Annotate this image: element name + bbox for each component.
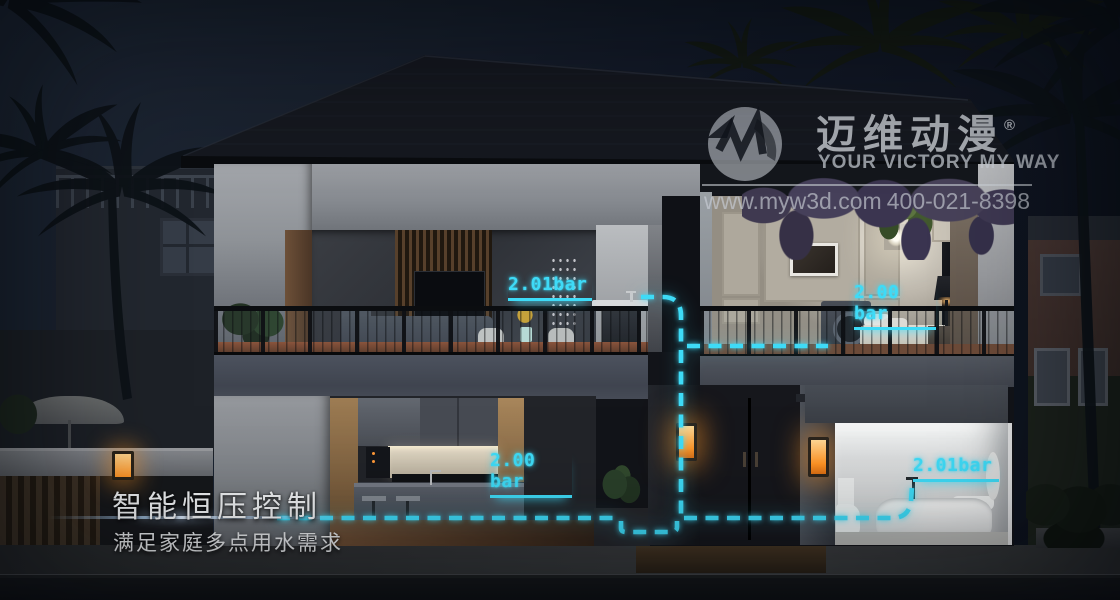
pipe-main-right <box>684 487 912 518</box>
pressure-label-kitchen: 2.00 bar <box>490 450 572 498</box>
pressure-label-basin: 2.01bar <box>508 274 592 301</box>
scene: 2.01bar 2.00 bar 2.00 bar 2.01bar 迈维动漫® … <box>0 0 1120 600</box>
mw-logo-icon <box>704 103 786 185</box>
logo-company-name-text: 迈维动漫 <box>816 113 1004 157</box>
phone-number: 400-021-8398 <box>887 188 1030 215</box>
website-url: www.myw3d.com <box>704 188 882 215</box>
registered-trademark-icon: ® <box>1004 117 1015 134</box>
pressure-label-bedroom: 2.00 bar <box>854 282 936 330</box>
caption-title: 智能恒压控制 <box>112 482 322 526</box>
caption-subtitle: 满足家庭多点用水需求 <box>113 527 343 557</box>
pressure-label-bathtub: 2.01bar <box>913 455 999 482</box>
logo-contact-row: www.myw3d.com 400-021-8398 <box>704 188 1030 215</box>
pipe-riser <box>641 297 681 517</box>
logo-divider-line <box>702 184 1032 186</box>
pipe-jog <box>621 521 677 532</box>
logo-tagline: YOUR VICTORY MY WAY <box>818 152 1060 174</box>
